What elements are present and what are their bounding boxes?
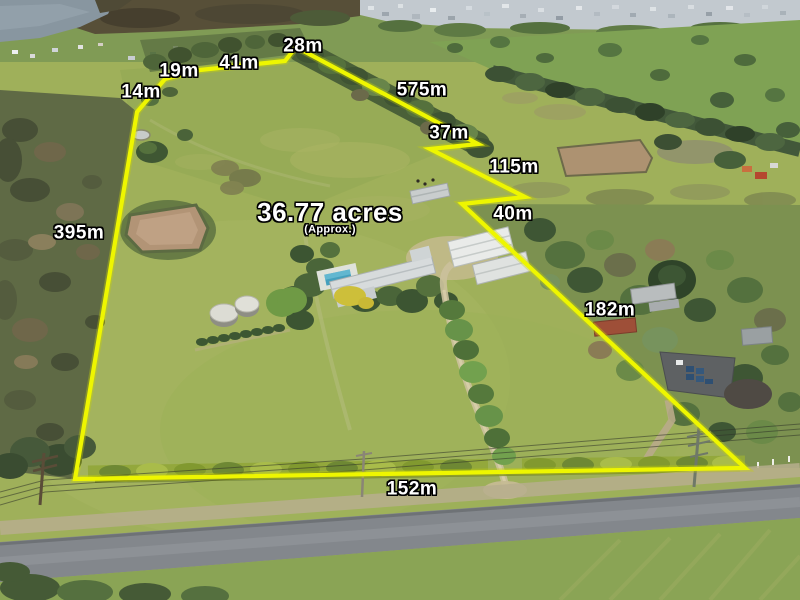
pond-trees (654, 134, 682, 150)
measurement-label-152m: 152m (387, 480, 438, 499)
measurement-label-37m: 37m (429, 124, 469, 143)
wooded-hill-green (290, 10, 350, 26)
measurement-label-40m: 40m (493, 205, 533, 224)
measurement-label-115m: 115m (489, 158, 539, 177)
measurement-label-14m: 14m (121, 83, 161, 102)
measurement-label-19m: 19m (159, 62, 199, 81)
yellow-flowering-tree2 (358, 297, 374, 309)
area-approx-label: (Approx.) (304, 225, 356, 236)
measurement-label-28m: 28m (283, 37, 323, 56)
grey-roof-house (741, 327, 772, 346)
skylight (676, 360, 683, 365)
measurement-label-182m: 182m (585, 301, 636, 320)
aerial-property-photo: 14m 19m 41m 28m 575m 37m 115m 40m 395m 1… (0, 0, 800, 600)
wooded-hill-shade2 (195, 4, 305, 24)
small-tree (177, 129, 193, 141)
pond-trees2 (714, 151, 746, 169)
farm-dam (120, 200, 216, 260)
lone-tree-crown (139, 142, 157, 154)
measurement-label-41m: 41m (219, 54, 259, 73)
measurement-label-575m: 575m (397, 81, 448, 100)
round-roof-wing (724, 379, 772, 409)
bright-green-tree (277, 287, 307, 313)
area-label: 36.77 acres (257, 199, 403, 225)
measurement-label-395m: 395m (54, 224, 105, 243)
